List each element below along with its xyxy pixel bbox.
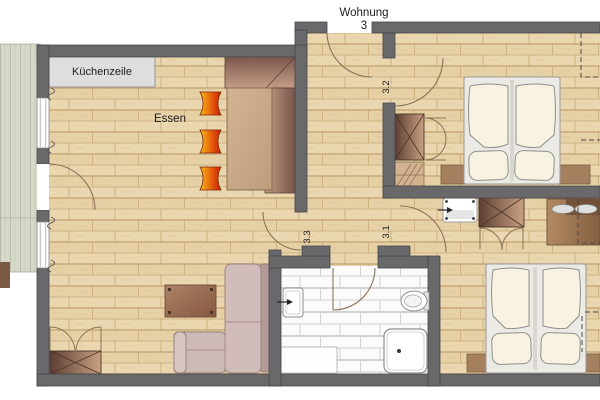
wall-bottom [37,374,600,386]
double-bed-bottom [486,264,586,373]
pillow [540,332,580,364]
apartment-title-line2: 3 [361,20,367,32]
window [37,222,49,268]
wall-bath-west [269,250,281,386]
dining-table [227,88,272,190]
wall-left-pier [37,210,49,222]
wall-bedroomtop-west-upper [383,33,395,58]
floor-plan-drawing: Wohnung 3 Küchenzeile Essen 3.2 3.3 3.1 [0,0,600,400]
door-label-31: 3.1 [381,225,392,238]
duvet [469,84,509,148]
wall-left-lower [37,268,49,386]
balcony-door-opening [37,164,49,210]
duvet [516,84,556,148]
wall-top-living [37,45,307,57]
door-label-33: 3.3 [302,230,313,243]
shower-drain-icon [397,349,401,353]
windows [37,98,49,268]
bowl [552,205,574,214]
double-bed-top [464,77,560,184]
window [37,98,49,148]
balcony-deck [0,44,40,272]
kitchen-unit-label: Küchenzeile [72,66,132,78]
bar-stools [200,92,221,190]
wall-bath-stub-left [302,246,330,256]
wall-bath-north-left [269,256,330,268]
desk [547,199,600,245]
pillow [514,150,554,180]
bath-cabinet [281,347,337,373]
shower [384,329,427,373]
wall-bedroomtop-west-lower [383,103,395,198]
wall-connector [295,30,307,47]
bar-stool [200,167,221,190]
dining-label: Essen [154,113,186,125]
bar-stool [200,130,221,153]
wall-left-upper [37,45,49,98]
wall-bath-stub-right [378,246,410,256]
bar-stool [200,92,221,115]
wall-bath-north-right [378,256,428,268]
pillow [469,150,509,180]
pillow [491,332,531,364]
wall-bath-east [428,256,440,386]
wall-entrance-right [372,22,600,33]
wall-corridor-west [295,45,307,212]
apartment-title-line1: Wohnung [339,7,388,19]
floor-plan: Wohnung 3 Küchenzeile Essen 3.2 3.3 3.1 [0,0,600,400]
coffee-table [165,285,216,317]
wall-bedroom-divider [383,186,600,198]
washbasin-bedroom [438,198,477,222]
balcony-planter [0,262,10,288]
door-label-32: 3.2 [381,80,392,93]
balcony [0,44,40,288]
